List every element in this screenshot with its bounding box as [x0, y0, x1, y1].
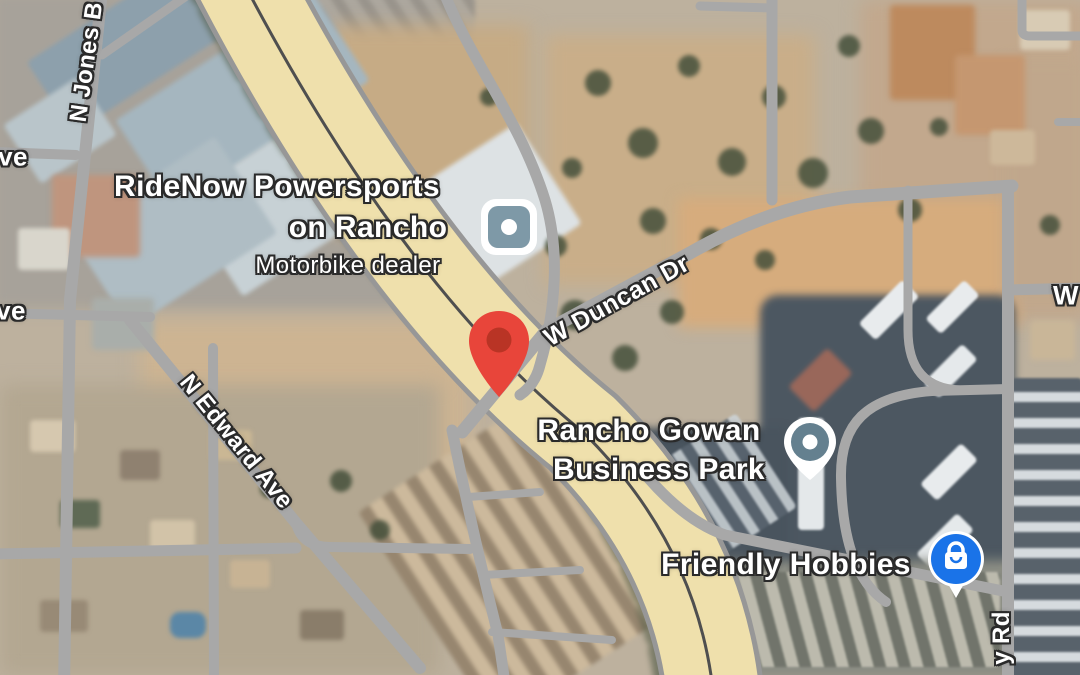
- destination-marker-icon[interactable]: [467, 309, 531, 399]
- street-label-ave-upper: ve: [0, 142, 28, 173]
- friendly-hobbies-shopping-pin-icon[interactable]: [927, 530, 985, 600]
- street-label-w-truncated: W: [1053, 281, 1079, 312]
- road-top-edge-stub: [700, 6, 772, 8]
- road-trailer-rib2: [482, 570, 580, 575]
- poi-label-ridenow-line1[interactable]: RideNow Powersports: [114, 170, 440, 204]
- satellite-map-canvas[interactable]: N Jones B ve ve N Edward Ave W Duncan Dr…: [0, 0, 1080, 675]
- road-topleft-diagonal: [102, 0, 192, 55]
- shopping-bag-body: [945, 552, 967, 569]
- poi-label-friendly-hobbies[interactable]: Friendly Hobbies: [661, 548, 911, 582]
- road-businesspark-spur: [908, 190, 960, 390]
- road-trailer-rib3: [492, 632, 612, 640]
- poi-label-rancho-gowan-line1[interactable]: Rancho Gowan: [537, 414, 760, 448]
- poi-label-ridenow-line2[interactable]: on Rancho: [289, 211, 448, 245]
- road-left-horizontal: [0, 548, 296, 554]
- street-label-ave-lower: ve: [0, 296, 26, 327]
- road-trailer-rib1: [468, 492, 540, 497]
- poi-label-rancho-gowan-line2[interactable]: Business Park: [553, 453, 765, 487]
- roads-layer: [0, 0, 1080, 675]
- rancho-gowan-place-pin-icon[interactable]: [782, 416, 838, 482]
- ridenow-square-poi-icon[interactable]: [480, 198, 538, 256]
- poi-label-ridenow-category[interactable]: Motorbike dealer: [255, 252, 440, 280]
- road-edward-branch: [296, 523, 470, 549]
- street-label-rd-vertical: y Rd: [988, 611, 1016, 665]
- road-topright-corner: [1022, 0, 1080, 36]
